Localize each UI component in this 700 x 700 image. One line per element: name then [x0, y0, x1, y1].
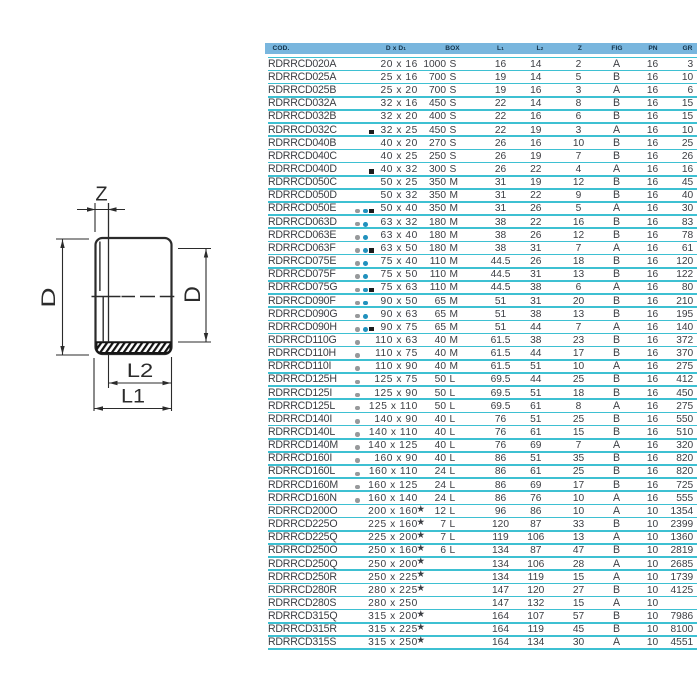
svg-text:L1: L1 — [121, 386, 145, 408]
svg-text:Z: Z — [95, 183, 107, 205]
svg-text:D: D — [180, 286, 204, 303]
svg-text:D: D — [38, 287, 60, 307]
svg-text:L2: L2 — [127, 360, 154, 382]
